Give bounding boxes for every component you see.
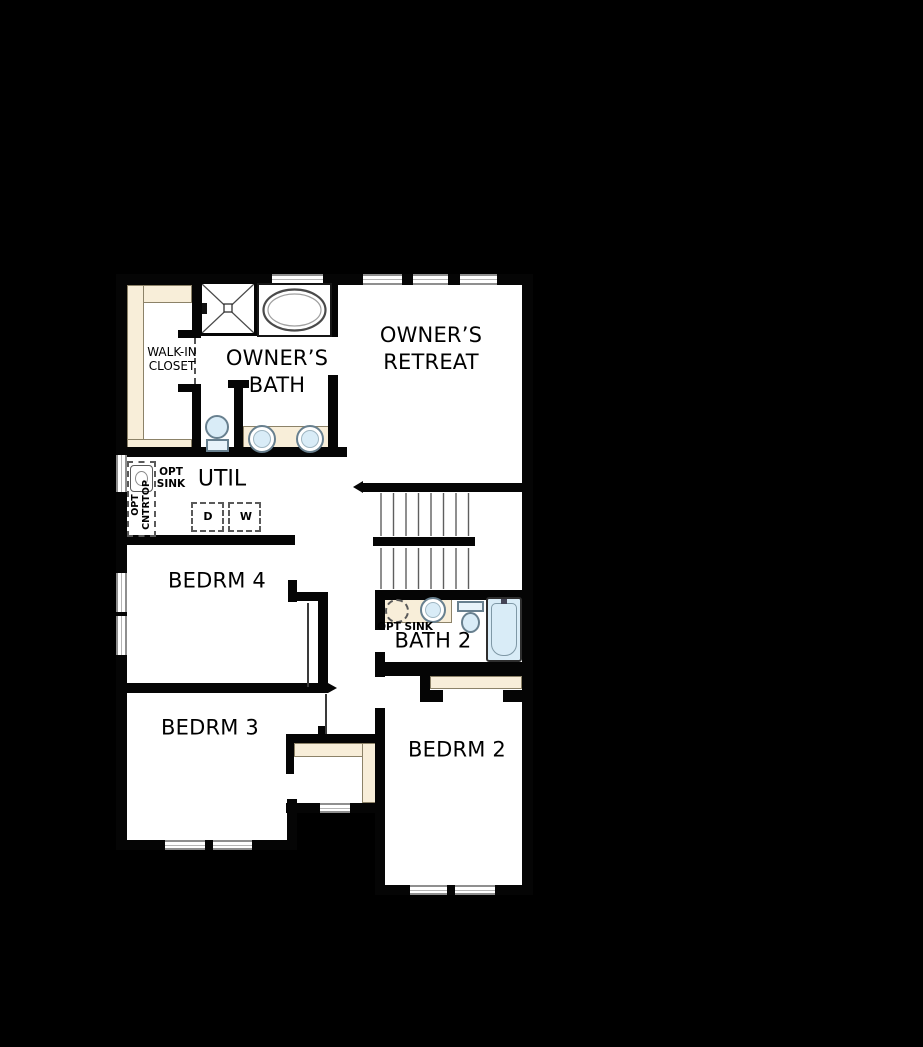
toilet-tank [457,601,484,612]
wall [295,592,328,601]
door-leaf [307,603,309,687]
shower-glass-lines [202,284,254,333]
window [320,803,350,813]
room-label-bedrm4: BEDRM 4 [168,568,266,595]
room-label-owners-retreat: OWNER’S RETREAT [380,322,482,376]
wall [375,885,533,895]
garden-tub [257,283,332,337]
label-line: OPT [130,494,141,516]
opt-countertop-label: OPT CNTRTOP [130,480,152,530]
wall [318,601,328,693]
wall [503,690,533,702]
room-label-walk-in-closet: WALK-IN CLOSET [147,345,197,373]
room-label-bedrm2: BEDRM 2 [408,737,506,764]
toilet-base [206,439,229,452]
floor-plan: WALK-IN CLOSET OWNER’S BATH OWNER’S RETR… [0,0,923,1047]
window [213,840,252,850]
wall [375,708,385,895]
wall [116,274,127,850]
optional-sink-dashed [385,599,409,623]
label-line: RETREAT [383,350,479,374]
bedrm2-closet-shelf [430,676,522,689]
washer-label: W [240,511,252,523]
window [455,885,495,895]
door-leaf [325,694,327,734]
window [116,573,127,612]
opt-sink-label-bath2: OPT SINK [377,621,433,633]
window [410,885,447,895]
opt-sink-label-util: OPT SINK [157,466,185,490]
wall [116,683,328,693]
label-line: CLOSET [149,359,196,373]
stair-railing [373,537,475,546]
door-jamb [178,384,201,392]
window [460,274,497,285]
label-line: SINK [157,478,185,490]
dryer-label: D [203,511,212,523]
label-line: BATH [249,373,306,397]
label-line: OWNER’S [380,323,482,347]
stairs [373,492,525,590]
window [116,616,127,655]
toilet [205,415,229,439]
room-label-owners-bath: OWNER’S BATH [226,345,328,399]
wall [286,734,381,743]
window [165,840,205,850]
label-line: OWNER’S [226,346,328,370]
window [363,274,402,285]
room-label-util: UTIL [198,467,246,492]
shower [199,281,257,336]
label-line: WALK-IN [147,345,197,359]
wall [116,840,297,850]
wall [375,662,533,676]
room-label-bedrm3: BEDRM 3 [161,715,259,742]
label-line: OPT [159,466,183,478]
window [413,274,448,285]
label-line: CNTRTOP [141,480,152,530]
door-jamb [178,330,201,338]
vanity-sink [248,425,276,453]
wall [420,690,443,702]
wall-end [328,683,337,693]
stair-header-wall [363,483,533,492]
window [116,455,127,492]
bath2-sink [420,597,446,623]
wall-end [353,481,363,493]
closet-shelf [127,285,144,457]
wall [328,375,338,450]
bathtub [486,597,522,662]
vanity-sink [296,425,324,453]
